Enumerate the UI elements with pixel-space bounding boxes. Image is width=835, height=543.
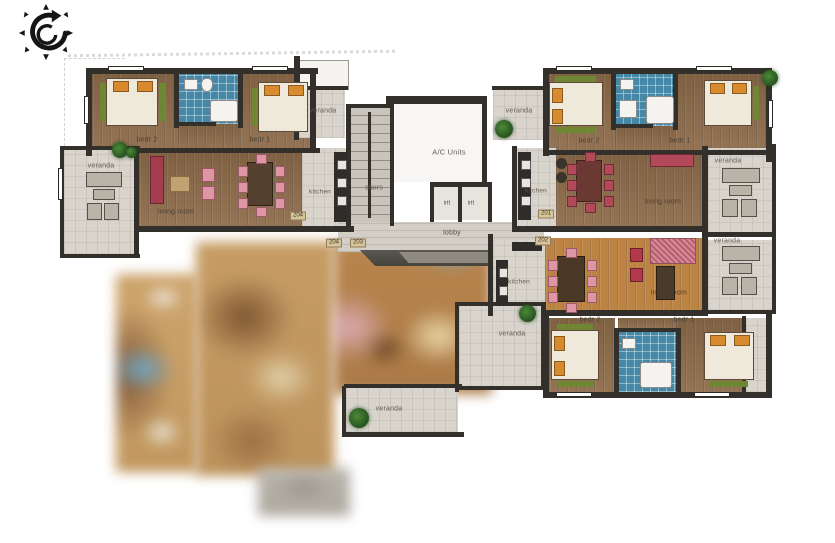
dining-chair: [604, 196, 614, 207]
outdoor-chair: [741, 277, 757, 295]
room-label-veranda-bottom: veranda: [376, 406, 403, 413]
appliance: [521, 178, 531, 188]
appliance: [499, 268, 508, 278]
wall: [616, 328, 678, 332]
bed: [704, 332, 754, 380]
armchair-round: [556, 158, 567, 169]
plant-icon: [495, 120, 513, 138]
window: [108, 66, 144, 71]
dining-chair: [238, 198, 248, 209]
wall: [60, 254, 140, 258]
room-label-living-204: living room: [158, 209, 194, 216]
room-label-kitchen-204: kitchen: [309, 189, 331, 196]
room-label-living-201: living room: [645, 199, 681, 206]
dining-chair: [585, 203, 596, 213]
room-label-kitchen-202: kitchen: [508, 279, 530, 286]
room-label-veranda-mid: veranda: [499, 331, 526, 338]
outdoor-chair: [722, 199, 738, 217]
dining-chair: [587, 292, 597, 303]
bed: [704, 80, 752, 126]
wall: [390, 104, 394, 226]
blurred-apartment-203-mid: [196, 242, 334, 476]
sofa: [650, 238, 696, 264]
wall: [455, 386, 545, 390]
room-label-kitchen-201: kitchen: [525, 188, 547, 195]
compass-icon: [16, 4, 76, 62]
wall: [176, 122, 216, 126]
dining-chair: [256, 207, 267, 217]
dining-chair: [587, 276, 597, 287]
appliance: [337, 196, 347, 206]
bed: [106, 78, 158, 126]
wall: [174, 70, 179, 128]
room-label-living-202: living room: [651, 290, 687, 297]
plant-icon: [519, 305, 536, 322]
outdoor-chair: [741, 199, 757, 217]
armchair: [630, 248, 643, 262]
room-label-bedroom1-202: bedr 1: [673, 317, 694, 324]
room-label-veranda-201: veranda: [715, 158, 742, 165]
sofa: [650, 154, 694, 167]
ac-units-floor: [390, 104, 482, 182]
wall: [136, 226, 354, 232]
wall: [614, 328, 619, 394]
wall: [455, 302, 459, 392]
dining-chair: [548, 276, 558, 287]
wall: [613, 124, 653, 128]
dining-chair: [275, 166, 285, 177]
wall: [386, 96, 486, 104]
dining-chair: [548, 292, 558, 303]
faint-print-line: [68, 50, 398, 58]
wall: [512, 146, 517, 232]
window: [696, 66, 732, 71]
dining-chair: [604, 180, 614, 191]
room-label-stairs: stairs: [365, 185, 383, 192]
kitchen-counter: [496, 260, 508, 306]
dining-table: [576, 160, 602, 202]
wall: [702, 146, 708, 236]
outdoor-chair: [104, 203, 119, 220]
wall: [134, 148, 320, 153]
dining-table: [247, 162, 273, 206]
wall: [342, 432, 464, 437]
room-label-veranda-202: veranda: [714, 238, 741, 245]
armchair: [202, 168, 215, 182]
shower: [619, 100, 637, 118]
dining-chair: [238, 166, 248, 177]
wall: [342, 386, 346, 436]
dining-chair: [566, 303, 577, 313]
floor-plan-canvas: bedr 2 bedr 1 veranda living room kitche…: [0, 0, 835, 543]
door-plate-201: 201: [538, 210, 554, 219]
coffee-table: [170, 176, 190, 192]
dining-chair: [567, 180, 577, 191]
outdoor-table: [93, 189, 115, 200]
blurred-apartment-203-left: [116, 274, 198, 472]
dining-chair: [567, 164, 577, 175]
door-plate-lobby-204: 204: [326, 239, 342, 248]
dining-chair: [587, 260, 597, 271]
window: [768, 100, 773, 128]
armchair-round: [556, 172, 567, 183]
bed: [551, 330, 599, 380]
room-label-bedroom2-202: bedr 2: [579, 317, 600, 324]
appliance: [337, 160, 347, 170]
wall: [134, 148, 139, 256]
wall: [488, 182, 492, 222]
outdoor-table: [729, 185, 752, 196]
sink: [184, 79, 198, 90]
wall: [346, 104, 394, 108]
dining-chair: [585, 152, 596, 162]
appliance: [499, 286, 508, 296]
room-label-lift-left: lift: [444, 201, 451, 208]
room-label-bedroom1-204: bedr 1: [249, 137, 270, 144]
outdoor-chair: [722, 277, 738, 295]
wall: [772, 238, 776, 314]
dining-chair: [275, 182, 285, 193]
dining-chair: [256, 154, 267, 164]
window: [252, 66, 288, 71]
dining-chair: [238, 182, 248, 193]
door-plate-202: 202: [535, 237, 551, 246]
room-label-ac-units: A/C Units: [432, 149, 465, 156]
wall: [458, 184, 462, 222]
room-label-bedroom2-204: bedr 2: [136, 137, 157, 144]
armchair: [202, 186, 215, 200]
wall: [238, 70, 243, 128]
window: [84, 96, 89, 124]
dining-chair: [275, 198, 285, 209]
room-label-veranda-top-right: veranda: [506, 108, 533, 115]
wall: [492, 86, 548, 90]
lift-right-cab: [462, 186, 488, 220]
dining-chair: [566, 248, 577, 258]
dining-chair: [604, 164, 614, 175]
room-label-veranda-204: veranda: [88, 163, 115, 170]
wall: [611, 70, 616, 130]
wall: [430, 182, 434, 222]
appliance: [337, 178, 347, 188]
dining-chair: [567, 196, 577, 207]
wall: [708, 232, 772, 237]
blurred-apartment-203-bottom: [258, 468, 350, 516]
bathtub: [640, 362, 672, 388]
room-label-veranda-top-left: veranda: [310, 108, 337, 115]
plant-icon: [762, 70, 778, 86]
room-label-lobby: lobby: [443, 230, 461, 237]
sink: [622, 338, 636, 349]
bathtub: [210, 100, 238, 122]
outdoor-chair: [87, 203, 102, 220]
window: [556, 392, 592, 397]
wall: [344, 384, 462, 388]
window: [556, 66, 592, 71]
appliance: [521, 160, 531, 170]
room-label-lift-right: lift: [468, 201, 475, 208]
wall: [541, 302, 546, 390]
door-plate-lobby-203: 203: [350, 239, 366, 248]
bathtub: [646, 96, 674, 124]
dining-chair: [548, 260, 558, 271]
room-label-bedroom2-201: bedr 2: [578, 138, 599, 145]
appliance: [521, 196, 531, 206]
wall: [702, 236, 708, 316]
dining-table: [557, 256, 585, 302]
outdoor-sofa: [722, 168, 760, 183]
bed: [549, 82, 603, 126]
stairs-rail: [368, 112, 371, 218]
outdoor-sofa: [722, 246, 760, 261]
window: [58, 168, 63, 200]
wall: [60, 146, 64, 258]
stairs-floor: [351, 106, 391, 224]
wall: [772, 144, 776, 238]
wall: [482, 96, 487, 184]
plant-icon: [126, 147, 137, 158]
wall: [512, 226, 708, 232]
toilet: [201, 78, 213, 92]
door-plate-204: 204: [290, 212, 306, 221]
wall: [766, 312, 772, 398]
wall: [708, 310, 772, 314]
room-label-bedroom1-201: bedr 1: [669, 138, 690, 145]
bed: [258, 82, 308, 132]
sink: [620, 79, 634, 90]
armchair: [630, 268, 643, 282]
outdoor-table: [729, 263, 752, 274]
window: [694, 392, 730, 397]
outdoor-sofa: [86, 172, 122, 187]
wall: [676, 328, 681, 394]
sofa: [150, 156, 164, 204]
plant-icon: [349, 408, 369, 428]
